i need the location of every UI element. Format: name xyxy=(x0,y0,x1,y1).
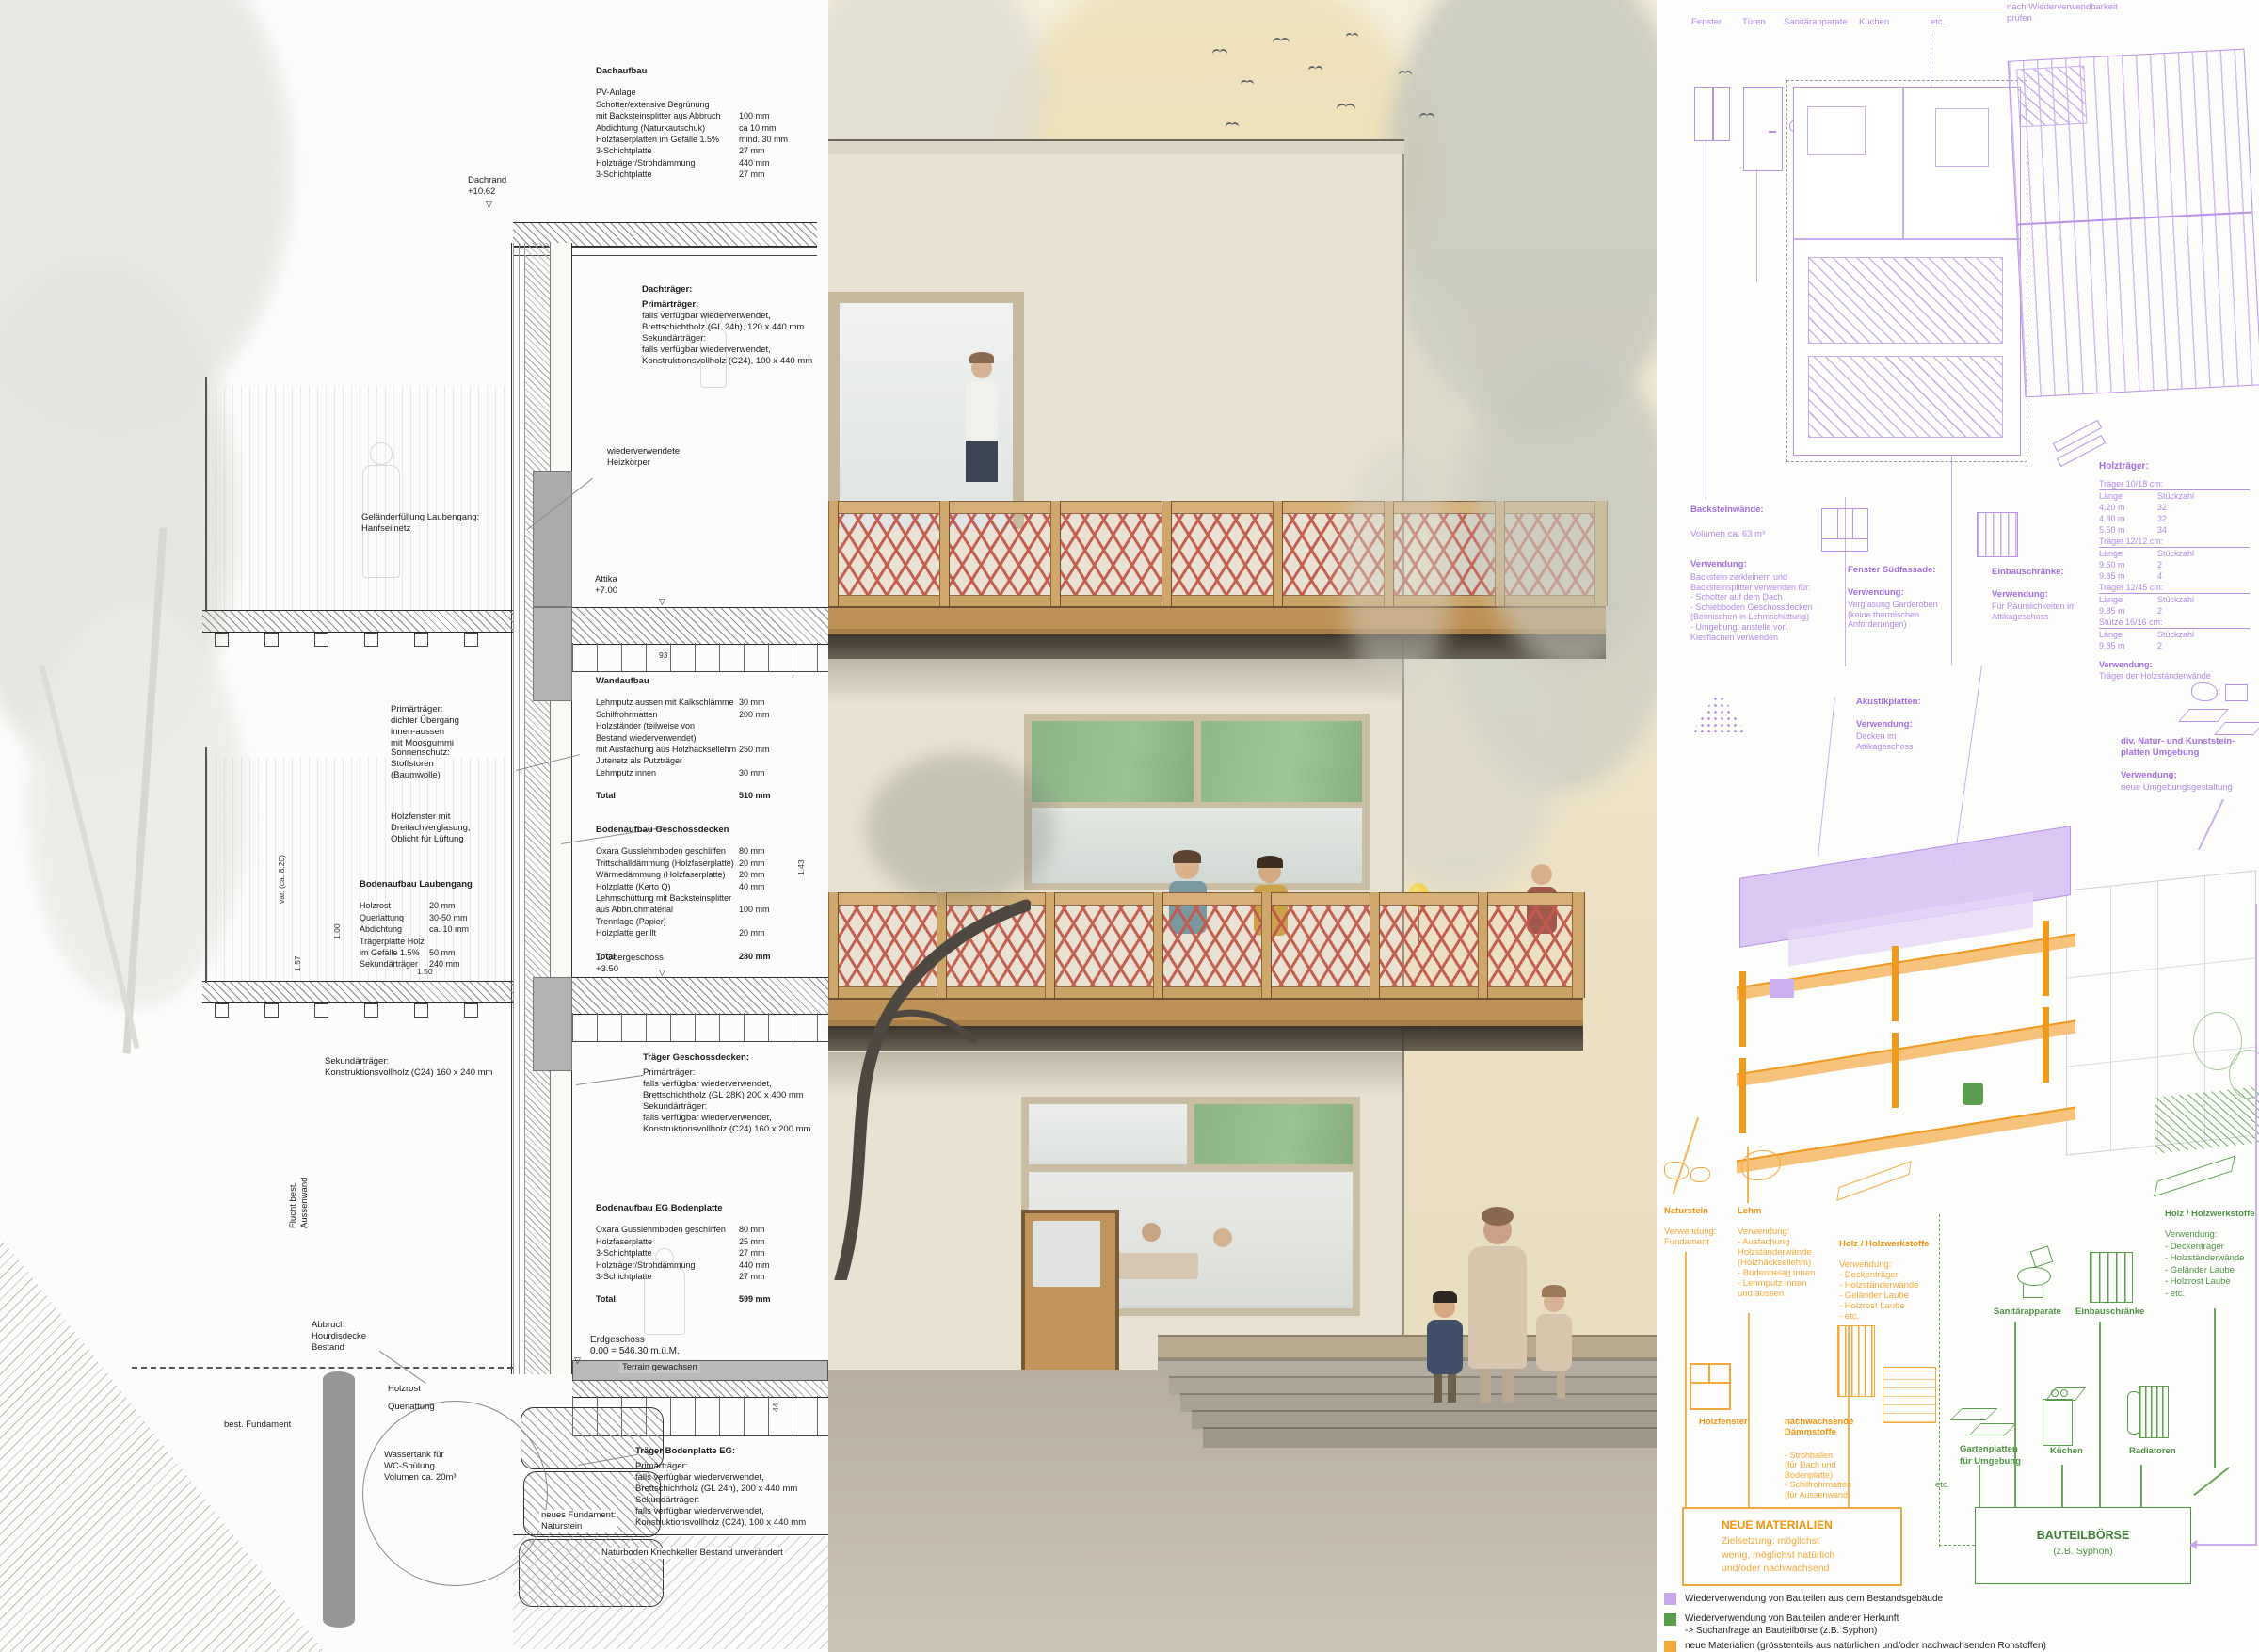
akustik-title: Akustikplatten: xyxy=(1856,697,1921,708)
tree-foliage xyxy=(1341,442,1454,687)
top-item-fenster: Fenster xyxy=(1691,17,1722,28)
connector xyxy=(2014,1322,2016,1507)
box-lines: Zielsetzung: möglichstwenig, möglichst n… xyxy=(1722,1534,1834,1576)
text-line: - Deckenträger xyxy=(2165,1242,2245,1254)
secondary-girder-callout: Sekundärträger:Konstruktionsvollholz (C2… xyxy=(325,1056,492,1079)
legend-swatch-green xyxy=(1664,1613,1676,1626)
walkway-beam xyxy=(414,633,428,647)
total-value: 510 mm xyxy=(739,790,771,801)
text-line: Attika xyxy=(595,574,617,585)
text-line: Konstruktionsvollholz (C24), 100 x 440 m… xyxy=(642,356,812,367)
level-marker-icon: ▽ xyxy=(659,968,665,978)
text-line: - Ausfachung xyxy=(1738,1237,1815,1247)
attika-level-label: Attika+7.00 xyxy=(595,574,617,597)
attika-joists xyxy=(572,643,828,672)
beam-table: 9.85 m2 xyxy=(2099,605,2259,617)
bird-icon xyxy=(1212,49,1227,56)
spec-row: 3-Schichtplatte27 mm xyxy=(596,168,818,180)
crawlspace-ground-line xyxy=(513,1534,828,1535)
balcony-post xyxy=(1273,501,1283,606)
backstein-block: Backsteinwände: xyxy=(1690,505,1764,516)
walkway-buildup-spec: Bodenaufbau Laubengang Holzrost20 mmQuer… xyxy=(360,879,520,970)
text-line: Konstruktionsvollholz (C24), 100 x 440 m… xyxy=(635,1517,806,1529)
top-item-sanitaer: Sanitärapparate xyxy=(1784,17,1848,28)
bird-icon xyxy=(1241,80,1254,87)
text-line: +10.62 xyxy=(468,186,506,198)
text-line: Sekundärträger: xyxy=(635,1495,806,1506)
use-line: Träger der Holzständerwände xyxy=(2099,670,2259,682)
text-line: Attikageschoss xyxy=(1856,742,1914,752)
holzrost-label: Holzrost xyxy=(388,1384,421,1395)
akustik-uses: Decken imAttikageschoss xyxy=(1856,731,1914,751)
balcony-post xyxy=(1162,501,1172,606)
wood-plank-icon xyxy=(1836,1161,1912,1201)
spec-row: Holzfaserplatte25 mm xyxy=(596,1236,818,1247)
text-line: Konstruktionsvollholz (C24) 160 x 200 mm xyxy=(643,1124,810,1135)
text-line: Verwendung: xyxy=(1738,1227,1815,1237)
door-glass xyxy=(1033,1221,1100,1287)
brick-rubble-icon xyxy=(1692,689,1745,732)
dimension-label: 44 xyxy=(770,1403,781,1412)
text-line: Verwendung: xyxy=(1664,1227,1716,1237)
connector xyxy=(2140,1465,2142,1507)
spec-title: Wandaufbau xyxy=(596,676,818,687)
legend-row: neue Materialien (grösstenteils aus natü… xyxy=(1685,1640,2046,1652)
reuse-check-note: nach Wiederverwendbarkeitprüfen xyxy=(2007,2,2118,24)
text-line: falls verfügbar wiederverwendet, xyxy=(642,345,812,356)
text-line: Erdgeschoss xyxy=(590,1335,680,1346)
spec-row: 3-Schichtplatte27 mm xyxy=(596,1247,818,1259)
spec-row: 9.85 m2 xyxy=(2099,605,2259,617)
group-head: Träger 10/18 cm: xyxy=(2099,478,2250,490)
roof-buildup-spec: Dachaufbau PV-AnlageSchotter/extensive B… xyxy=(596,66,818,181)
connector-dashed xyxy=(1939,1214,1940,1547)
beam-table: 9.50 m29.85 m4 xyxy=(2099,559,2259,582)
text-line: Wiederverwendung von Bauteilen aus dem B… xyxy=(1685,1593,1943,1605)
walkway-beam xyxy=(264,1003,279,1018)
terrain-line-dashed xyxy=(132,1367,513,1369)
balcony-post xyxy=(1370,892,1380,998)
railing-callout: Geländerfüllung Laubengang:Hanfseilnetz xyxy=(361,512,479,535)
stair-step xyxy=(1203,1427,1657,1448)
text-line: - Holzrost Laube xyxy=(2165,1276,2245,1289)
spec-row: Jutenetz als Putzträger xyxy=(596,755,818,766)
spec-title: Dachaufbau xyxy=(596,66,818,77)
cabinet-icon-green xyxy=(2090,1252,2133,1303)
text-line: - Geländer Laube xyxy=(2165,1265,2245,1277)
spec-table: Holzrost20 mmQuerlattung30-50 mmAbdichtu… xyxy=(360,900,520,970)
wall-insulation-layer xyxy=(525,243,550,1374)
walkway-slab-mid xyxy=(202,981,513,1003)
stair-step xyxy=(1192,1410,1657,1429)
text-line: Backstein zerkleinern und xyxy=(1690,572,1813,583)
spec-row: Holzträger/Strohdämmung440 mm xyxy=(596,157,818,168)
text-line: Verwendung: xyxy=(1839,1259,1919,1270)
text-line: - Geländer Laube xyxy=(1839,1291,1919,1301)
text-line: - Lehmputz innen xyxy=(1738,1278,1815,1289)
legend-swatch-purple xyxy=(1664,1593,1676,1605)
stone-plates-use: neue Umgebungsgestaltung xyxy=(2121,782,2233,794)
text-line: Sekundärträger: xyxy=(642,333,812,345)
text-line: Holzständerwände xyxy=(1738,1247,1815,1258)
walkway-beam xyxy=(264,633,279,647)
text-line: Für Räumlichkeiten im xyxy=(1992,601,2076,612)
axon-column xyxy=(1739,1058,1746,1133)
axon-column xyxy=(1739,971,1746,1047)
axon-column xyxy=(1892,1033,1899,1108)
wall-cladding-layer xyxy=(513,243,525,1374)
primary-girder-callout: Primärträger:dichter Überganginnen-ausse… xyxy=(391,704,459,749)
spec-row: 5.50 m34 xyxy=(2099,524,2259,536)
fenster-sued-uses: Verglasung Garderoben(keine thermischenA… xyxy=(1848,600,1938,630)
stone-icon xyxy=(1664,1160,1713,1194)
dachrand-level-label: Dachrand+10.62 xyxy=(468,175,506,198)
holz-green-uses: Verwendung:- Deckenträger- Holzständerwä… xyxy=(2165,1229,2245,1301)
box-title: BAUTEILBÖRSE xyxy=(1976,1529,2190,1542)
connector xyxy=(1748,1313,1750,1507)
slab-girder-callout: Primärträger:falls verfügbar wiederverwe… xyxy=(635,1461,806,1529)
text-line: div. Natur- und Kunststein- xyxy=(2121,736,2235,747)
text-line: wenig, möglichst natürlich xyxy=(1722,1548,1834,1563)
text-line: Oblicht für Lüftung xyxy=(391,834,471,845)
spec-total: Total 599 mm xyxy=(596,1293,818,1305)
spec-row: Oxara Gusslehmboden geschliffen80 mm xyxy=(596,845,818,857)
wall-buildup-spec: Wandaufbau Lehmputz aussen mit Kalkschlä… xyxy=(596,676,818,802)
text-line: - Holzständerwände xyxy=(1839,1280,1919,1291)
concrete-infill xyxy=(533,607,572,701)
dimension-label: 1.43 xyxy=(795,859,807,875)
tree-branch xyxy=(828,866,1031,1280)
text-line: Primärträger: xyxy=(635,1461,806,1472)
balcony-post xyxy=(1572,892,1585,998)
text-line: Bestand xyxy=(312,1342,366,1354)
connector xyxy=(2061,1465,2063,1507)
stair-step xyxy=(1169,1376,1657,1395)
einbau-label: Einbauschränke xyxy=(2075,1307,2144,1319)
radiator-icon-green xyxy=(2125,1386,2174,1446)
text-line: neue Materialien (grösstenteils aus natü… xyxy=(1685,1640,2046,1652)
text-line: - Umgebung: anstelle von xyxy=(1690,622,1813,633)
col-label: Stückzahl xyxy=(2157,594,2194,605)
etc-label: etc. xyxy=(1935,1480,1949,1492)
naturstein-uses: Verwendung:Fundament xyxy=(1664,1227,1716,1247)
walkway-beam xyxy=(464,1003,478,1018)
level-marker-icon: ▽ xyxy=(574,1355,581,1366)
bauteilboerse-box: BAUTEILBÖRSE (z.B. Syphon) xyxy=(1975,1507,2191,1584)
text-line: - Strohballen xyxy=(1785,1451,1851,1460)
col-label: Länge xyxy=(2099,594,2157,605)
terrain-band xyxy=(572,1360,828,1381)
text-line: (Baumwolle) xyxy=(391,770,450,781)
spec-row: Lehmschüttung mit Backsteinsplitter xyxy=(596,892,818,904)
kitchen-icon-green xyxy=(2041,1386,2086,1446)
group-head: Träger 12/45 cm: xyxy=(2099,582,2250,594)
toilet-icon-green xyxy=(2010,1248,2057,1307)
top-item-etc: etc. xyxy=(1931,17,1945,28)
spec-title: Bodenaufbau Geschossdecken xyxy=(596,825,818,836)
text-line: Gartenplatten xyxy=(1960,1444,2021,1456)
text-line: Zielsetzung: möglichst xyxy=(1722,1534,1834,1548)
bird-icon xyxy=(1337,104,1355,113)
spec-row: Querlattung30-50 mm xyxy=(360,912,520,923)
spec-row: mit Backsteinsplitter aus Abbruch100 mm xyxy=(596,110,818,121)
top-item-tueren: Türen xyxy=(1742,17,1766,28)
window-glass xyxy=(1029,1104,1187,1164)
walkway-slab-top xyxy=(202,610,513,633)
green-pane xyxy=(1194,1104,1353,1164)
einbau-uses: Für Räumlichkeiten imAttikageschoss xyxy=(1992,601,2076,621)
text-line: (Holzhäcksellehm) xyxy=(1738,1258,1815,1268)
balcony-post xyxy=(1261,892,1272,998)
eg-level-label: Erdgeschoss 0.00 = 546.30 m.ü.M. xyxy=(590,1335,680,1358)
text-line: Bodenplatte) xyxy=(1785,1470,1851,1480)
col-label: Stückzahl xyxy=(2157,490,2194,502)
connector xyxy=(2099,1322,2101,1507)
backstein-uses: Backstein zerkleinern undBacksteinsplitt… xyxy=(1690,572,1813,642)
window-icon xyxy=(1694,87,1730,141)
text-line: Brettschichtholz (GL 24h), 120 x 440 mm xyxy=(642,322,812,333)
spec-row: Holzfaserplatten im Gefälle 1.5%mind. 30… xyxy=(596,134,818,145)
text-line: - Holzständerwände xyxy=(2165,1253,2245,1265)
bird-icon xyxy=(1419,113,1434,120)
window-callout: Holzfenster mitDreifachverglasung,Oblich… xyxy=(391,811,471,845)
text-line: - Schiebboden Geschossdecken xyxy=(1690,602,1813,613)
text-line: Anforderungen) xyxy=(1848,619,1938,630)
balcony-post xyxy=(1045,892,1055,998)
roof-girder-title: Dachträger: xyxy=(642,284,692,296)
spec-row: Lehmputz innen30 mm xyxy=(596,767,818,778)
dimension-label: 1.50 xyxy=(417,966,433,977)
interior-figure xyxy=(1142,1223,1161,1242)
concrete-infill xyxy=(533,977,572,1071)
balcony-deck xyxy=(828,606,1606,636)
terrain-label: Terrain gewachsen xyxy=(619,1362,700,1373)
presentation-board: Dachaufbau PV-AnlageSchotter/extensive B… xyxy=(0,0,2259,1652)
text-line: dichter Übergang xyxy=(391,715,459,727)
text-line: Wassertank für xyxy=(384,1450,457,1461)
block-title: Holzträger: xyxy=(2099,461,2259,473)
text-line: (für Dach und xyxy=(1785,1460,1851,1469)
garten-label: Gartenplattenfür Umgebung xyxy=(1960,1444,2021,1468)
text-line: Wiederverwendung von Bauteilen anderer H… xyxy=(1685,1612,1899,1625)
connector xyxy=(1979,1465,1980,1507)
connector xyxy=(1685,1252,1687,1507)
connector xyxy=(2193,1467,2230,1496)
facade-shadow xyxy=(828,659,1404,704)
spec-row: 9.85 m2 xyxy=(2099,640,2259,651)
top-connector-line xyxy=(1706,8,2003,8)
col-label: Länge xyxy=(2099,490,2157,502)
verwendung-label: Verwendung: xyxy=(1848,587,1904,599)
walkway-beam xyxy=(464,633,478,647)
verwendung-label: Verwendung: xyxy=(1690,559,1747,570)
text-line: Brettschichtholz (GL 24h), 200 x 440 mm xyxy=(635,1484,806,1495)
text-line: Backsteinsplitter verwenden für: xyxy=(1690,583,1813,593)
legend-row: Wiederverwendung von Bauteilen anderer H… xyxy=(1685,1612,1899,1637)
stair-step xyxy=(1158,1359,1657,1378)
floor-plan-left xyxy=(1793,87,2021,456)
stone-plates-title: div. Natur- und Kunststein-platten Umgeb… xyxy=(2121,736,2235,758)
wall-inner-line xyxy=(571,243,572,1374)
total-label: Total xyxy=(596,1293,739,1305)
walkway-beam xyxy=(364,633,378,647)
text-line: nach Wiederverwendbarkeit xyxy=(2007,2,2118,13)
verwendung-label: Verwendung: xyxy=(2099,659,2259,670)
spec-row: Trägerplatte Holz xyxy=(360,936,520,947)
connector xyxy=(1953,666,1982,866)
verwendung-label: Verwendung: xyxy=(2121,770,2177,781)
og-level-label: 1. Obergeschoss+3.50 xyxy=(596,953,664,975)
text-line: Dreifachverglasung, xyxy=(391,823,471,834)
naturstein-title: Naturstein xyxy=(1664,1206,1708,1216)
material-flow-panel: nach Wiederverwendbarkeitprüfen Fenster … xyxy=(1657,0,2259,1652)
holz-uses: Verwendung:- Deckenträger- Holzständerwä… xyxy=(1839,1259,1919,1322)
text-line: prüfen xyxy=(2007,13,2118,24)
text-line: Verwendung: xyxy=(2165,1229,2245,1242)
spec-row: im Gefälle 1.5%50 mm xyxy=(360,947,520,958)
text-line: (keine thermischen xyxy=(1848,610,1938,620)
kuechen-label: Küchen xyxy=(2050,1446,2083,1458)
upper-window xyxy=(828,292,1024,529)
connector xyxy=(1756,169,1757,282)
text-line: Heizkörper xyxy=(607,457,680,469)
stair-step xyxy=(1180,1393,1657,1412)
text-line: für Umgebung xyxy=(1960,1456,2021,1468)
spec-title: Bodenaufbau EG Bodenplatte xyxy=(596,1203,818,1214)
text-line: 1. Obergeschoss xyxy=(596,953,664,964)
text-line: platten Umgebung xyxy=(2121,747,2235,759)
balcony-post xyxy=(1478,892,1488,998)
spec-row: Holzplatte gerillt20 mm xyxy=(596,927,818,938)
old-foundation xyxy=(323,1371,355,1628)
text-line: Sekundärträger: xyxy=(643,1101,810,1113)
axon-green-chair xyxy=(1963,1083,1983,1105)
straw-bale-icon xyxy=(1882,1367,1936,1423)
col-label: Länge xyxy=(2099,629,2157,640)
level-marker-icon: ▽ xyxy=(659,597,665,607)
text-line: Verglasung Garderoben xyxy=(1848,600,1938,610)
concrete-infill xyxy=(533,471,572,607)
fenster-sued-title: Fenster Südfassade: xyxy=(1848,565,1935,576)
site-slope-hatch xyxy=(0,1214,325,1652)
balcony-shadow xyxy=(828,634,1606,659)
text-line: Brettschichtholz (GL 28K) 200 x 400 mm xyxy=(643,1090,810,1101)
bird-icon xyxy=(1308,66,1322,73)
beam-table: 4.20 m324.80 m325.50 m34 xyxy=(2099,502,2259,536)
wood-walkway xyxy=(1158,1335,1657,1359)
dimension-label: 1.57 xyxy=(292,955,303,971)
text-line: Aussenwand xyxy=(299,1178,311,1228)
bird-icon xyxy=(1273,38,1290,46)
walkway-beam xyxy=(215,1003,229,1018)
spec-row: Bestand wiederverwendet) xyxy=(596,732,818,744)
spec-row: Abdichtung (Naturkautschuk)ca 10 mm xyxy=(596,122,818,134)
balcony-post xyxy=(1050,501,1061,606)
elevation-render-panel xyxy=(828,0,1657,1652)
text-line: nachwachsende xyxy=(1785,1417,1853,1427)
figure-in-window xyxy=(960,358,1001,518)
spec-row: Holzplatte (Kerto Q)40 mm xyxy=(596,881,818,892)
window-grid-icon xyxy=(1821,508,1868,552)
balcony-post xyxy=(1153,892,1163,998)
radiatoren-label: Radiatoren xyxy=(2129,1446,2176,1458)
text-line: Abbruch xyxy=(312,1320,366,1331)
col-label: Stückzahl xyxy=(2157,548,2194,559)
text-line: Kiesflächen verwenden xyxy=(1690,633,1813,643)
railing-net xyxy=(207,386,510,610)
daemmstoffe-title: nachwachsendeDämmstoffe xyxy=(1785,1417,1853,1437)
beam-icon xyxy=(2052,425,2108,463)
text-line: und/oder nachwachsend xyxy=(1722,1562,1834,1576)
legend-row: Wiederverwendung von Bauteilen aus dem B… xyxy=(1685,1593,1943,1605)
text-line: Attikageschoss xyxy=(1992,612,2076,622)
leader-line xyxy=(576,1075,643,1085)
total-value: 280 mm xyxy=(739,951,771,962)
beam-table: 9.85 m2 xyxy=(2099,640,2259,651)
wood-plank-icon-green xyxy=(2154,1156,2235,1197)
text-line: - Deckenträger xyxy=(1839,1270,1919,1280)
text-line: Naturstein xyxy=(541,1521,616,1532)
text-line: 0.00 = 546.30 m.ü.M. xyxy=(590,1346,680,1357)
text-line: WC-Spülung xyxy=(384,1461,457,1472)
spec-table: Lehmputz aussen mit Kalkschlämme30 mmSch… xyxy=(596,697,818,778)
holz-green-title: Holz / Holzwerkstoffe xyxy=(2165,1209,2255,1221)
og-joists xyxy=(572,1013,828,1042)
text-line: - Schotter auf dem Dach xyxy=(1690,592,1813,602)
text-line: Dachrand xyxy=(468,175,506,186)
spec-title: Bodenaufbau Laubengang xyxy=(360,879,520,890)
wood-window-icon xyxy=(1690,1363,1731,1410)
text-line: wiederverwendete xyxy=(607,446,680,457)
lehm-uses: Verwendung:- AusfachungHolzständerwände(… xyxy=(1738,1227,1815,1299)
col-label: Stückzahl xyxy=(2157,629,2194,640)
spec-row: Schilfrohrmatten200 mm xyxy=(596,709,818,720)
balcony-post xyxy=(939,501,950,606)
total-label: Total xyxy=(596,790,739,801)
flucht-label: Flucht best.Aussenwand xyxy=(288,1178,311,1228)
text-line: Decken im xyxy=(1856,731,1914,742)
group-head: Träger 12/12 cm: xyxy=(2099,536,2250,548)
spec-row: Holzständer (teilweise von xyxy=(596,720,818,731)
text-line: - Schilfrohrmatten xyxy=(1785,1480,1851,1489)
spec-row: 3-Schichtplatte27 mm xyxy=(596,1271,818,1282)
text-line: falls verfügbar wiederverwendet, xyxy=(635,1472,806,1484)
walkway-beam xyxy=(215,633,229,647)
connector xyxy=(2214,1308,2216,1468)
floor-girder-callout: Primärträger:falls verfügbar wiederverwe… xyxy=(643,1067,810,1135)
text-line: falls verfügbar wiederverwendet, xyxy=(643,1113,810,1124)
spec-row: Schotter/extensive Begrünung xyxy=(596,99,818,110)
balcony-post xyxy=(828,501,839,606)
text-line: Konstruktionsvollholz (C24) 160 x 240 mm xyxy=(325,1067,492,1079)
spec-row: Trittschalldämmung (Holzfaserplatte)20 m… xyxy=(596,858,818,869)
new-foundation-callout: neues Fundament:Naturstein xyxy=(539,1510,617,1532)
tree-foliage xyxy=(1478,358,1657,668)
arrow-left-icon xyxy=(2189,1540,2197,1549)
walkway-beam xyxy=(364,1003,378,1018)
spec-row: 9.50 m2 xyxy=(2099,559,2259,570)
spec-table: PV-AnlageSchotter/extensive Begrünungmit… xyxy=(596,87,818,180)
box-title: NEUE MATERIALIEN xyxy=(1722,1518,1833,1532)
text-line: Hanfseilnetz xyxy=(361,523,479,535)
box-subtitle: (z.B. Syphon) xyxy=(1976,1546,2190,1557)
text-line: - Bodenbelag innen xyxy=(1738,1268,1815,1278)
spec-row: 4.80 m32 xyxy=(2099,513,2259,524)
bird-icon xyxy=(1346,33,1358,40)
spec-table: Oxara Gusslehmboden geschliffen80 mmHolz… xyxy=(596,1224,818,1282)
clay-icon xyxy=(1741,1150,1781,1180)
spec-row: Trennlage (Papier) xyxy=(596,916,818,927)
